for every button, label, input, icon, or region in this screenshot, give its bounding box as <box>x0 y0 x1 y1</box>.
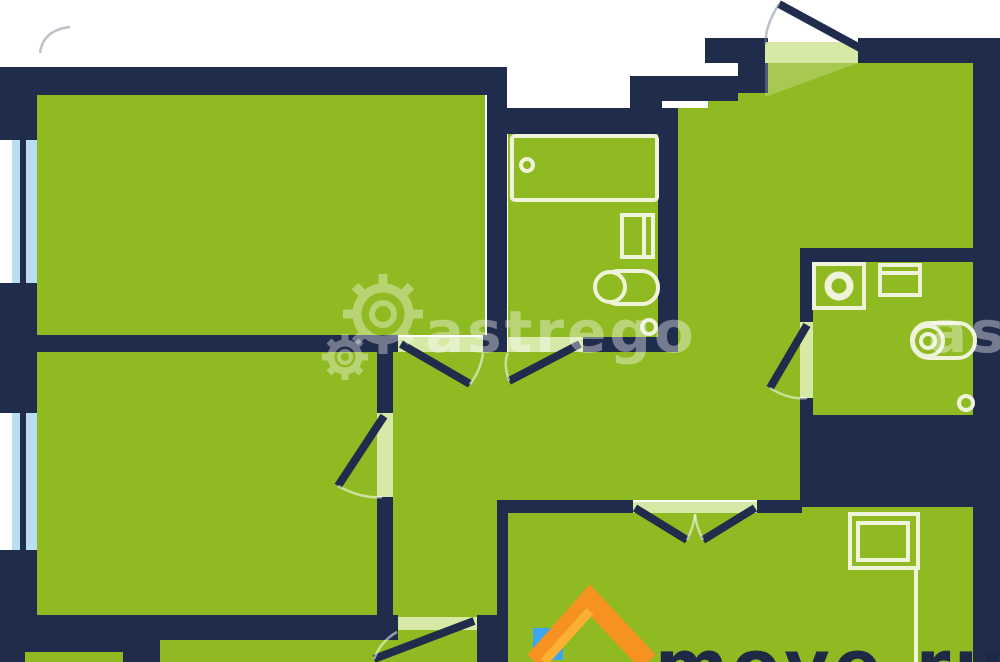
bed2-right-wall-lower <box>377 497 393 617</box>
bottom-block-1 <box>0 640 25 662</box>
hallway-floor <box>393 352 678 500</box>
bathroom-1-top-wall <box>490 108 678 134</box>
bedroom-2-floor <box>37 352 377 615</box>
window-1 <box>0 140 37 283</box>
balcony-door-opening <box>765 42 858 63</box>
balcony-door-leaf <box>779 4 860 48</box>
step-wall-a <box>705 38 768 63</box>
bottom-corridor-floor <box>160 640 477 662</box>
left-wall-seg1 <box>0 95 37 140</box>
bedroom-1-floor <box>37 95 485 335</box>
top-outer-wall <box>0 67 507 95</box>
left-wall-seg3 <box>0 550 37 620</box>
kitchen-double-door-opening <box>633 502 757 513</box>
bottom-block-2 <box>25 640 123 652</box>
logo-text: move.ru <box>655 625 1000 662</box>
bottom-wall-band <box>0 615 398 640</box>
bed2-right-wall-upper <box>377 352 393 413</box>
floorplan-svg: astrego as move.ru <box>0 0 1000 662</box>
bathroom-2-left-wall-upper <box>800 262 813 322</box>
step-wall-b <box>630 76 738 101</box>
watermark-brand-partial: as <box>928 298 1000 366</box>
bottom-block-3 <box>123 640 160 662</box>
watermark-brand-text: astrego <box>425 298 697 366</box>
window-2 <box>0 413 37 550</box>
bottom-left-floor <box>25 652 123 662</box>
bathroom-2-top-wall <box>800 248 1000 262</box>
shaft-block <box>800 430 975 507</box>
outside-door-arc <box>40 27 70 53</box>
hallway-lower-floor <box>393 500 497 617</box>
floorplan-image: astrego as move.ru <box>0 0 1000 662</box>
kitchen-top-wall-left <box>497 500 633 513</box>
kitchen-top-wall-right <box>757 500 802 513</box>
entry-corner-block <box>477 615 508 662</box>
step-wall-joint <box>738 63 768 93</box>
bathroom-2-bottom-wall <box>800 415 975 430</box>
